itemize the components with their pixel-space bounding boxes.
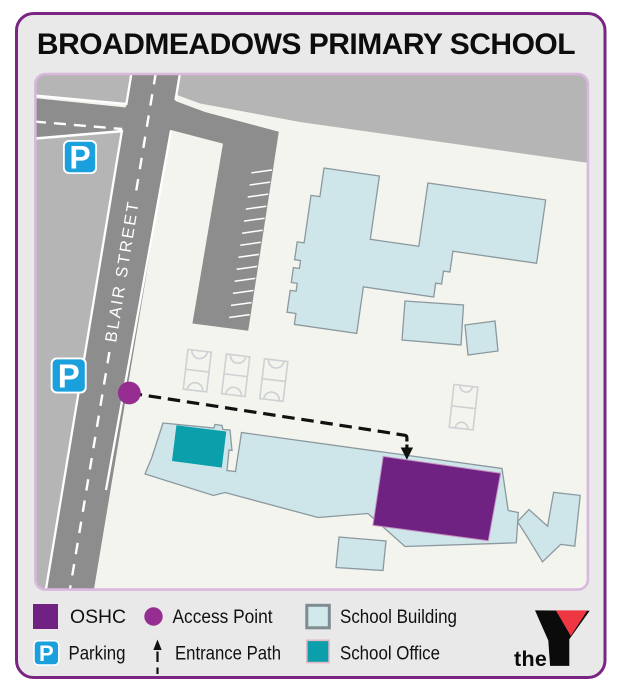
svg-text:School Building: School Building xyxy=(340,607,457,628)
svg-text:Parking: Parking xyxy=(69,644,126,665)
svg-text:P: P xyxy=(58,358,80,395)
svg-text:OSHC: OSHC xyxy=(70,607,126,628)
svg-text:the: the xyxy=(514,647,547,671)
svg-text:Access Point: Access Point xyxy=(173,607,274,628)
svg-text:P: P xyxy=(39,641,54,666)
svg-text:P: P xyxy=(69,140,90,176)
svg-text:School Office: School Office xyxy=(340,644,440,665)
svg-text:Entrance Path: Entrance Path xyxy=(175,644,281,665)
svg-text:BROADMEADOWS PRIMARY SCHOOL: BROADMEADOWS PRIMARY SCHOOL xyxy=(37,28,575,61)
